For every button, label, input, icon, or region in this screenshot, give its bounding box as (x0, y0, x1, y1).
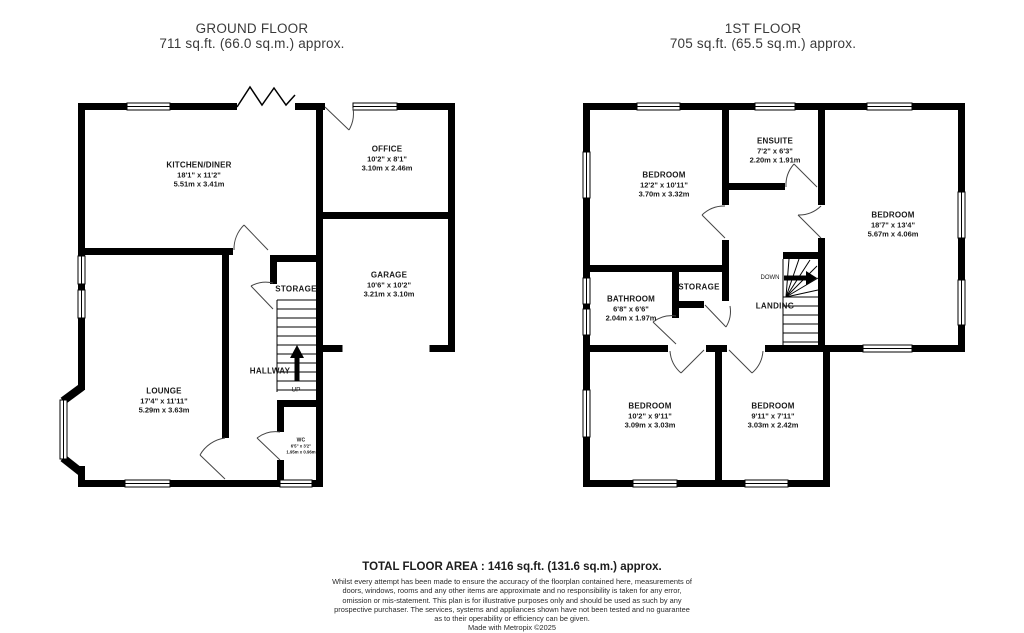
label-ff-storage: STORAGE (678, 283, 720, 292)
footer: TOTAL FLOOR AREA : 1416 sq.ft. (131.6 sq… (302, 560, 722, 633)
ground-floor-title-name: GROUND FLOOR (159, 21, 344, 36)
first-floor-title-area: 705 sq.ft. (65.5 sq.m.) approx. (670, 36, 856, 51)
label-gf-storage: STORAGE (275, 285, 317, 294)
gf-wall-break-zigzag (237, 87, 295, 107)
room-label-office: OFFICE 10'2" x 8'1" 3.10m x 2.46m (362, 144, 413, 172)
label-ff-landing: LANDING (756, 302, 795, 311)
room-label-bedroom-4: BEDROOM 9'11" x 7'11" 3.03m x 2.42m (748, 401, 799, 429)
room-label-wc: WC 6'5" x 3'2" 1.95m x 0.96m (286, 438, 315, 455)
room-label-lounge: LOUNGE 17'4" x 11'11" 5.29m x 3.63m (139, 386, 190, 414)
label-gf-hallway: HALLWAY (250, 367, 290, 376)
floorplan-page: { "titles": { "ground_floor": {"name": "… (0, 0, 1024, 631)
room-label-ensuite: ENSUITE 7'2" x 6'3" 2.20m x 1.91m (750, 136, 801, 164)
room-label-bathroom: BATHROOM 6'8" x 6'6" 2.04m x 1.97m (606, 294, 657, 322)
total-floor-area: TOTAL FLOOR AREA : 1416 sq.ft. (131.6 sq… (302, 560, 722, 574)
disclaimer-text: Whilst every attempt has been made to en… (331, 577, 693, 623)
ground-floor-title-area: 711 sq.ft. (66.0 sq.m.) approx. (159, 36, 344, 51)
room-label-bedroom-2: BEDROOM 18'7" x 13'4" 5.67m x 4.06m (868, 210, 919, 238)
first-floor-title-name: 1ST FLOOR (670, 21, 856, 36)
label-gf-up: UP (291, 387, 300, 394)
room-label-bedroom-3: BEDROOM 10'2" x 9'11" 3.09m x 3.03m (625, 401, 676, 429)
room-label-bedroom-1: BEDROOM 12'2" x 10'11" 3.70m x 3.32m (639, 170, 690, 198)
room-label-kitchen-diner: KITCHEN/DINER 18'1" x 11'2" 5.51m x 3.41… (166, 160, 231, 188)
label-ff-down: DOWN (761, 275, 780, 281)
floorplan-canvas (0, 0, 1024, 631)
ground-floor-title: GROUND FLOOR 711 sq.ft. (66.0 sq.m.) app… (159, 21, 344, 51)
room-label-garage: GARAGE 10'6" x 10'2" 3.21m x 3.10m (364, 270, 415, 298)
first-floor-title: 1ST FLOOR 705 sq.ft. (65.5 sq.m.) approx… (670, 21, 856, 51)
metropix-credit: Made with Metropix ©2025 (302, 623, 722, 633)
